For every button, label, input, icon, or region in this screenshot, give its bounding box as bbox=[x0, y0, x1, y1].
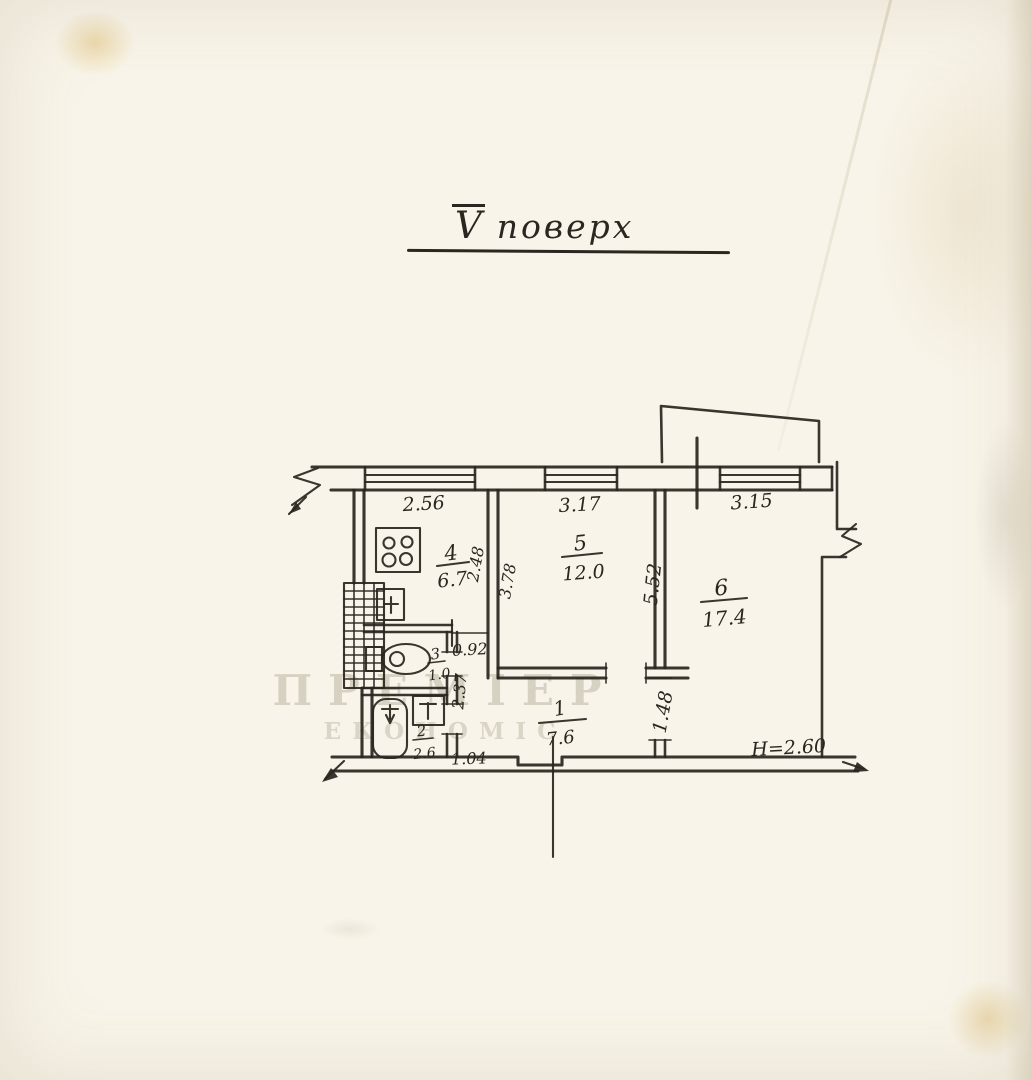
scan-vignette bbox=[0, 0, 1031, 1080]
